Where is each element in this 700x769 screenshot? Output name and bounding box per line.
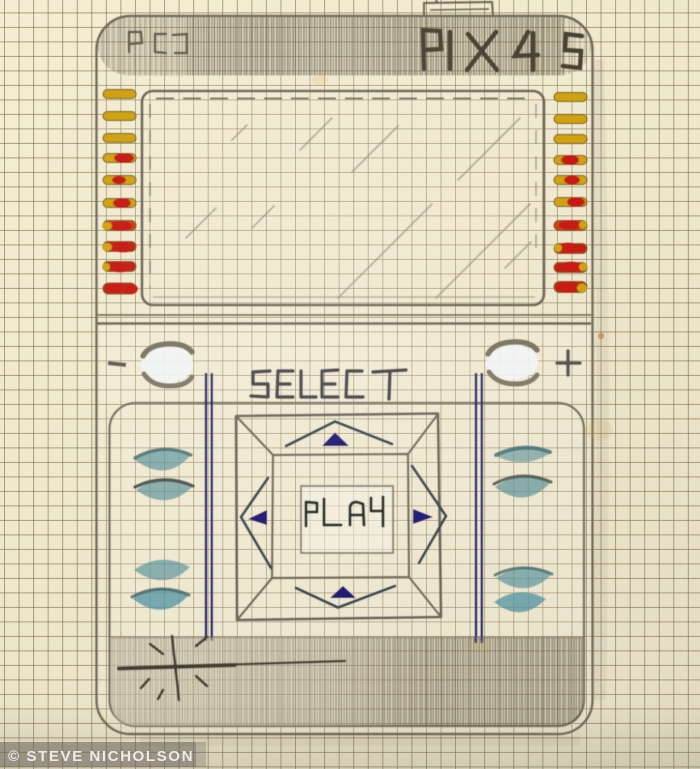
svg-text:© STEVE NICHOLSON: © STEVE NICHOLSON: [8, 748, 194, 765]
